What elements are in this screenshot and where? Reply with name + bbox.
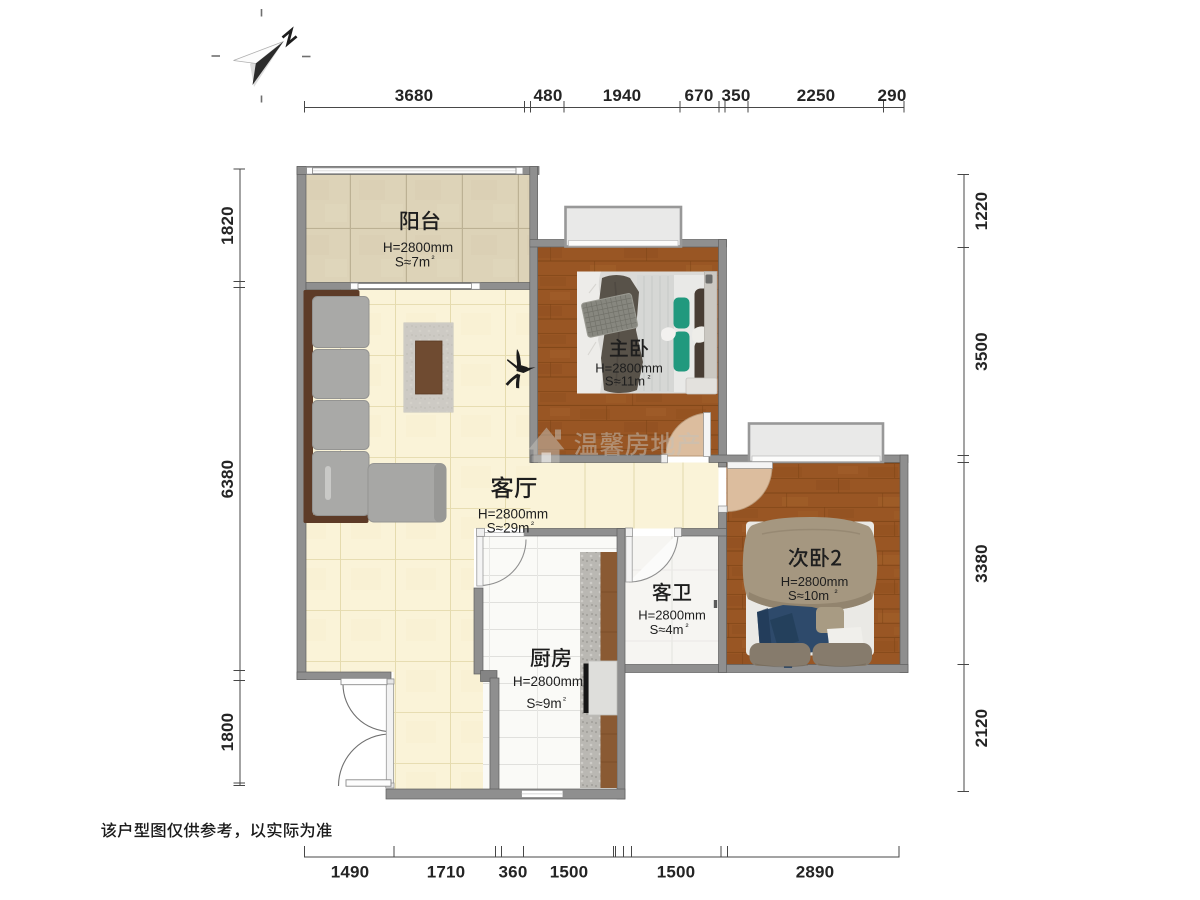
svg-text:1940: 1940 <box>603 86 642 105</box>
svg-text:S≈9m: S≈9m <box>526 696 561 711</box>
svg-text:H=2800mm: H=2800mm <box>478 506 548 521</box>
svg-text:2120: 2120 <box>972 709 991 748</box>
svg-text:6380: 6380 <box>218 460 237 499</box>
svg-text:H=2800mm: H=2800mm <box>781 574 849 589</box>
svg-text:²: ² <box>563 695 566 705</box>
svg-text:²: ² <box>648 373 651 383</box>
svg-text:3680: 3680 <box>395 86 434 105</box>
svg-text:S≈29m: S≈29m <box>487 520 530 535</box>
svg-text:350: 350 <box>722 86 751 105</box>
svg-text:480: 480 <box>534 86 563 105</box>
svg-text:3380: 3380 <box>972 544 991 583</box>
svg-text:²: ² <box>531 520 534 530</box>
svg-text:H=2800mm: H=2800mm <box>513 674 583 689</box>
svg-text:2890: 2890 <box>796 862 835 881</box>
svg-text:1220: 1220 <box>972 192 991 231</box>
svg-text:²: ² <box>835 588 838 598</box>
svg-text:3500: 3500 <box>972 332 991 371</box>
svg-text:290: 290 <box>878 86 907 105</box>
svg-text:1490: 1490 <box>331 862 370 881</box>
svg-text:H=2800mm: H=2800mm <box>383 240 453 255</box>
svg-text:1710: 1710 <box>427 862 466 881</box>
svg-text:²: ² <box>686 622 689 632</box>
svg-text:1500: 1500 <box>657 862 696 881</box>
svg-text:360: 360 <box>499 862 528 881</box>
svg-text:1820: 1820 <box>218 206 237 245</box>
svg-text:²: ² <box>432 254 435 264</box>
svg-text:1500: 1500 <box>550 862 589 881</box>
svg-text:S≈11m: S≈11m <box>605 374 645 389</box>
svg-text:670: 670 <box>685 86 714 105</box>
svg-text:S≈10m: S≈10m <box>788 588 829 603</box>
svg-text:S≈7m: S≈7m <box>395 254 430 269</box>
svg-text:H=2800mm: H=2800mm <box>638 608 706 623</box>
svg-text:S≈4m: S≈4m <box>650 622 684 637</box>
svg-text:1800: 1800 <box>218 713 237 752</box>
svg-text:2250: 2250 <box>797 86 836 105</box>
